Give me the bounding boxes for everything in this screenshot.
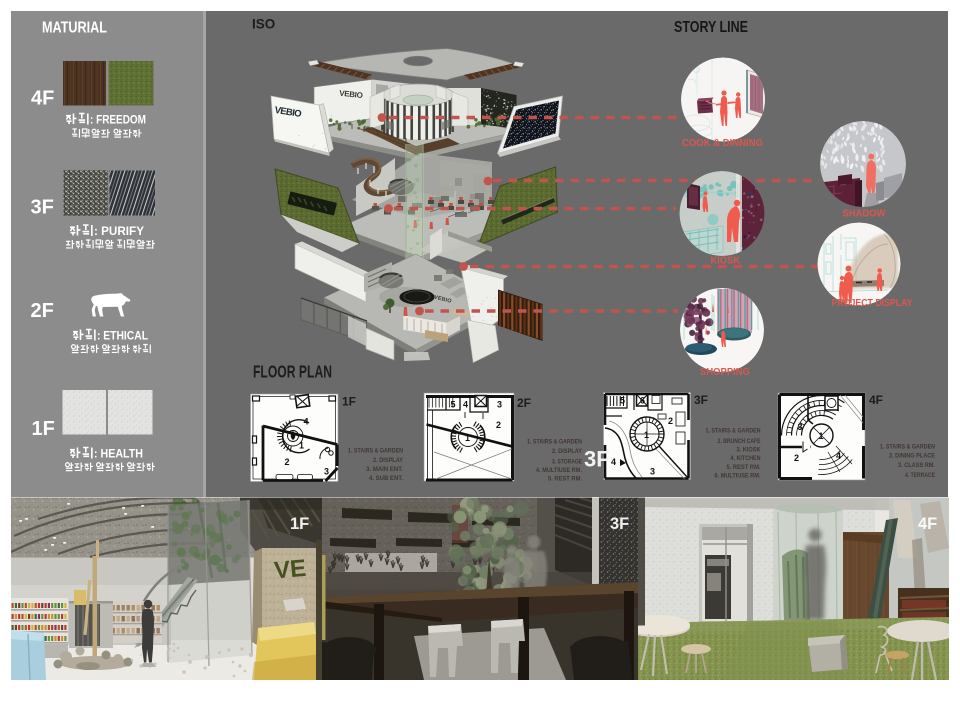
svg-text:: HEALTH: : HEALTH	[94, 447, 143, 461]
svg-text:1. STAIRS & GARDEN: 1. STAIRS & GARDEN	[348, 448, 403, 455]
svg-text:STORY LINE: STORY LINE	[674, 19, 748, 36]
svg-text:4. MULTIUSE RM.: 4. MULTIUSE RM.	[536, 467, 582, 474]
svg-text:2. DINING PLACE: 2. DINING PLACE	[889, 452, 936, 459]
svg-text:2: 2	[496, 420, 501, 430]
svg-text:1: 1	[819, 431, 824, 441]
svg-text:COOK & DINNING: COOK & DINNING	[682, 137, 763, 149]
svg-text:SHOPPING: SHOPPING	[700, 366, 750, 378]
svg-text:: FREEDOM: : FREEDOM	[90, 113, 146, 127]
svg-text:2F: 2F	[31, 300, 54, 322]
svg-text:4: 4	[611, 457, 616, 467]
svg-text:3. KIOSK: 3. KIOSK	[737, 447, 761, 454]
svg-text:VE: VE	[273, 555, 307, 585]
svg-text:3: 3	[497, 400, 502, 410]
svg-text:4F: 4F	[918, 515, 937, 533]
svg-text:3F: 3F	[610, 515, 629, 533]
svg-text:1. STAIRS & GARDEN: 1. STAIRS & GARDEN	[880, 443, 935, 450]
svg-text:4. KITCHEN: 4. KITCHEN	[731, 455, 761, 462]
svg-text:1: 1	[299, 441, 304, 451]
svg-text:4. TERRACE: 4. TERRACE	[905, 472, 935, 479]
svg-text:: PURIFY: : PURIFY	[94, 224, 144, 238]
svg-text:FLOOR PLAN: FLOOR PLAN	[253, 362, 332, 382]
svg-text:1F: 1F	[342, 395, 356, 409]
svg-text:3: 3	[798, 422, 803, 432]
svg-text:3. MAIN ENT.: 3. MAIN ENT.	[366, 466, 403, 473]
svg-text:1. STAIRS & GARDEN: 1. STAIRS & GARDEN	[706, 427, 761, 434]
svg-text:SHADOW: SHADOW	[843, 208, 886, 220]
svg-text:1: 1	[644, 430, 649, 440]
svg-text:5. REST RM.: 5. REST RM.	[548, 475, 582, 482]
svg-text:5: 5	[620, 396, 625, 406]
svg-text:1. STAIRS & GARDEN: 1. STAIRS & GARDEN	[527, 439, 582, 446]
svg-text:1F: 1F	[290, 515, 309, 533]
svg-text:5: 5	[451, 400, 456, 410]
svg-text:4F: 4F	[31, 88, 54, 110]
svg-text:2. BRUNCH CAFE: 2. BRUNCH CAFE	[718, 438, 761, 445]
svg-text:5. REST RM.: 5. REST RM.	[727, 464, 761, 471]
svg-text:6. MULTIUSE RM.: 6. MULTIUSE RM.	[715, 473, 761, 480]
svg-text:4. SUB ENT.: 4. SUB ENT.	[369, 475, 403, 482]
svg-text:2F: 2F	[517, 396, 531, 410]
svg-text:6: 6	[640, 396, 645, 406]
svg-text:ISO: ISO	[252, 17, 275, 32]
svg-text:MATURIAL: MATURIAL	[42, 20, 107, 37]
svg-text:1: 1	[465, 433, 470, 443]
svg-text:2: 2	[794, 453, 799, 463]
svg-text:3: 3	[324, 467, 329, 477]
svg-text:3. CLASS RM.: 3. CLASS RM.	[898, 462, 935, 469]
svg-text:4: 4	[836, 451, 841, 461]
svg-text:4: 4	[304, 417, 309, 427]
svg-text:: ETHICAL: : ETHICAL	[97, 329, 148, 343]
svg-text:2: 2	[285, 457, 290, 467]
svg-text:VO: VO	[686, 65, 701, 76]
svg-text:PROJECT DISPLAY: PROJECT DISPLAY	[832, 297, 913, 309]
svg-text:2. DISPLAY: 2. DISPLAY	[552, 448, 583, 455]
svg-text:3F: 3F	[31, 197, 54, 219]
svg-text:3F: 3F	[694, 393, 708, 407]
svg-text:3: 3	[650, 467, 655, 477]
svg-text:3F: 3F	[584, 447, 610, 472]
svg-text:2. DISPLAY: 2. DISPLAY	[373, 457, 404, 464]
svg-text:1F: 1F	[32, 418, 55, 440]
svg-text:3. STORAGE: 3. STORAGE	[552, 458, 582, 465]
svg-text:2: 2	[668, 416, 673, 426]
svg-text:4: 4	[463, 400, 468, 410]
svg-text:KIOSK: KIOSK	[711, 255, 741, 267]
svg-text:4F: 4F	[869, 393, 883, 407]
